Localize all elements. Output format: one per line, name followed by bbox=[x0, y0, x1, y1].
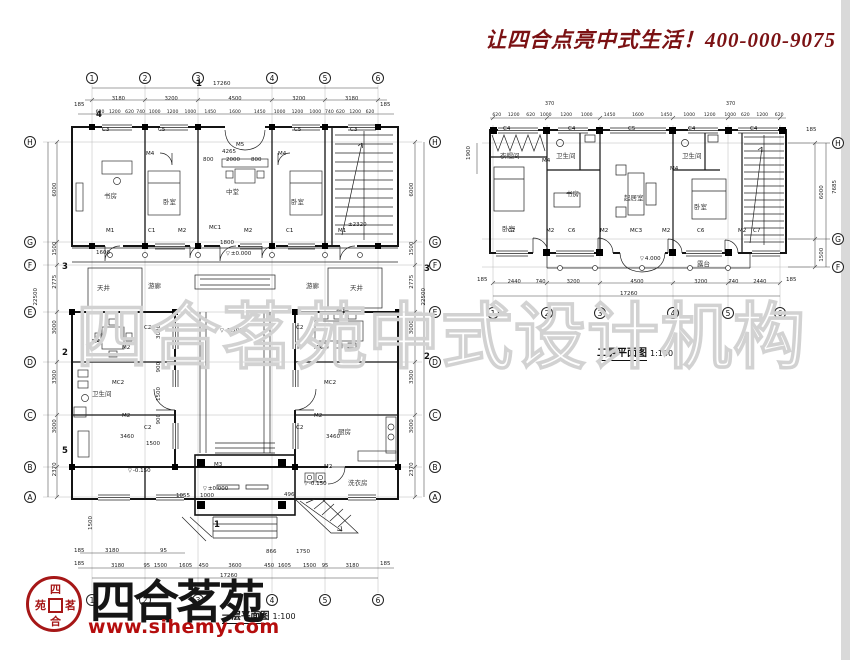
door-tag: M2 bbox=[600, 228, 608, 234]
dim: 4500 bbox=[198, 96, 273, 103]
dim: 6000 bbox=[817, 143, 827, 242]
dim-total-width: 17260 bbox=[620, 291, 638, 297]
seal-square bbox=[48, 598, 63, 613]
stair-level: ±2320 bbox=[348, 222, 367, 228]
grid-bubble: 5 bbox=[722, 307, 734, 319]
level-marker: ±0.000 bbox=[226, 251, 251, 257]
grid-bubble: G bbox=[24, 236, 36, 248]
room-label-closet: 衣帽间 bbox=[500, 150, 520, 160]
window-tag: C4 bbox=[750, 126, 757, 132]
grid-bubble: B bbox=[24, 461, 36, 473]
level-marker: 4.000 bbox=[640, 256, 661, 262]
grid-bubble: F bbox=[429, 259, 441, 271]
door-tag: M2 bbox=[738, 228, 746, 234]
room-label-study: 书房 bbox=[566, 188, 579, 198]
room-label-lightwell: 天井 bbox=[97, 282, 110, 292]
dim: 4500 bbox=[600, 279, 675, 286]
dim: 496 bbox=[284, 492, 295, 498]
dim: 900 bbox=[156, 362, 162, 373]
dim: 1200 bbox=[345, 110, 364, 116]
dim-total-height: 22500 bbox=[33, 288, 39, 306]
window-tag: C6 bbox=[568, 228, 575, 234]
room-label-dining: 餐厅 bbox=[336, 306, 349, 316]
dim: 900 bbox=[156, 414, 162, 425]
dim-chain-top-main: 3180 3200 4500 3200 3180 bbox=[92, 96, 378, 103]
dim-edge: 185 bbox=[477, 277, 488, 283]
window-tag: C2 bbox=[144, 325, 151, 331]
room-label-terrace: 露台 bbox=[697, 258, 710, 268]
dim: 2370 bbox=[50, 451, 60, 488]
door-window-tag: MC2 bbox=[112, 380, 124, 386]
dim-chain-top: 620 1200 620 1000 1200 1000 1450 1600 14… bbox=[491, 113, 785, 119]
grid-bubble: H bbox=[832, 137, 844, 149]
grid-bubble: H bbox=[429, 136, 441, 148]
dim: 620 bbox=[365, 110, 375, 116]
door-tag: M2 bbox=[314, 345, 322, 351]
door-tag: M2 bbox=[178, 228, 186, 234]
dim: 1500 bbox=[297, 563, 321, 570]
dim: 1605 bbox=[271, 563, 297, 570]
dim: 620 bbox=[740, 113, 752, 119]
dim: 1500 bbox=[88, 516, 94, 530]
dim: 3180 bbox=[92, 96, 145, 103]
room-label-bathroom: 卫生间 bbox=[92, 388, 112, 398]
dim: 740 bbox=[534, 279, 546, 286]
dim: 3000 bbox=[50, 304, 60, 351]
section-mark: 4 bbox=[96, 110, 102, 120]
window-tag: C4 bbox=[503, 126, 510, 132]
dim-edge: 185 bbox=[74, 102, 85, 108]
dim: 3460 bbox=[120, 434, 134, 440]
dim: 1000 bbox=[536, 113, 555, 119]
dim: 3180 bbox=[327, 563, 378, 570]
dim: 95 bbox=[160, 548, 167, 554]
section-mark: 3 bbox=[62, 262, 68, 272]
dim: 1450 bbox=[596, 113, 623, 119]
grid-bubble: B bbox=[429, 461, 441, 473]
dim-edge: 185 bbox=[380, 561, 391, 567]
dim: 1800 bbox=[220, 240, 234, 246]
dim-total-height: 7685 bbox=[832, 180, 838, 194]
seal-char: 四 bbox=[50, 581, 61, 597]
window-tag: C2 bbox=[296, 325, 303, 331]
window-tag: C4 bbox=[568, 126, 575, 132]
dim: 620 bbox=[525, 113, 537, 119]
room-label-bedroom: 卧室 bbox=[291, 196, 304, 206]
dim: 620 bbox=[773, 113, 785, 119]
dim-edge: 185 bbox=[380, 102, 391, 108]
grid-bubble: 6 bbox=[372, 72, 384, 84]
door-tag: M4 bbox=[542, 158, 550, 164]
section-mark: 3 bbox=[424, 264, 430, 274]
dim: 3200 bbox=[272, 96, 325, 103]
dim: 3300 bbox=[407, 351, 417, 403]
dim: 620 bbox=[125, 110, 135, 116]
plan2-caption-scale: 1:100 bbox=[650, 349, 673, 358]
dim: 740 bbox=[323, 110, 335, 116]
grid-bubble: G bbox=[429, 236, 441, 248]
door-tag: M1 bbox=[106, 228, 114, 234]
dim: 800 bbox=[251, 157, 262, 163]
dim: 6000 bbox=[50, 142, 60, 237]
dim: 1450 bbox=[248, 110, 272, 116]
grid-bubble: 5 bbox=[319, 594, 331, 606]
dim: 2440 bbox=[740, 279, 780, 286]
room-label-bedroom: 卧室 bbox=[163, 196, 176, 206]
grid-bubble: 6 bbox=[774, 307, 786, 319]
room-label-lightwell: 天井 bbox=[350, 282, 363, 292]
dim: 1200 bbox=[503, 113, 525, 119]
dim: 1000 bbox=[577, 113, 596, 119]
grid-bubble: 4 bbox=[266, 72, 278, 84]
dim: 1200 bbox=[555, 113, 577, 119]
grid-bubble: E bbox=[24, 306, 36, 318]
dim: 620 bbox=[491, 113, 503, 119]
dim: 3000 bbox=[156, 325, 162, 339]
room-label-kitchen: 厨房 bbox=[338, 426, 351, 436]
dim: 1000 bbox=[271, 110, 287, 116]
room-label-bedroom: 卧室 bbox=[694, 201, 707, 211]
door-window-tag: MC1 bbox=[209, 225, 221, 231]
room-label-bathroom: 卫生间 bbox=[556, 150, 576, 160]
dim: 740 bbox=[135, 110, 147, 116]
seal-char: 茗 bbox=[65, 597, 76, 613]
dim: 2440 bbox=[494, 279, 534, 286]
door-tag: M1 bbox=[338, 228, 346, 234]
drawing-sheet: 让四合点亮中式生活！400-000-9075 bbox=[0, 0, 850, 660]
dim: 620 bbox=[335, 110, 345, 116]
section-mark: 1 bbox=[196, 79, 202, 89]
dim: 1200 bbox=[751, 113, 773, 119]
grid-bubble: 4 bbox=[266, 594, 278, 606]
window-tag: C3 bbox=[350, 127, 357, 133]
dim: 1000 bbox=[200, 493, 214, 499]
dim: 6000 bbox=[407, 142, 417, 237]
dim: 1200 bbox=[699, 113, 721, 119]
window-tag: C3 bbox=[102, 127, 109, 133]
dim: 866 bbox=[266, 549, 277, 555]
grid-bubble: 2 bbox=[139, 72, 151, 84]
dim: 370 bbox=[726, 102, 735, 107]
dim: 1000 bbox=[680, 113, 699, 119]
dim: 1750 bbox=[296, 549, 310, 555]
grid-bubble: A bbox=[429, 491, 441, 503]
grid-bubble: 1 bbox=[86, 72, 98, 84]
dim: 3180 bbox=[105, 548, 119, 554]
dim: 1500 bbox=[146, 441, 160, 447]
room-label-laundry: 洗衣房 bbox=[348, 477, 368, 487]
window-tag: C2 bbox=[144, 425, 151, 431]
dim-chain-right: 6000 1500 bbox=[817, 143, 827, 267]
dim: 1000 bbox=[307, 110, 323, 116]
dim: 1600 bbox=[623, 113, 653, 119]
door-tag: M2 bbox=[314, 413, 322, 419]
door-tag: M4 bbox=[146, 151, 154, 157]
grid-bubble: A bbox=[24, 491, 36, 503]
dim: 3300 bbox=[50, 351, 60, 403]
door-tag: M2 bbox=[122, 413, 130, 419]
section-mark: 1 bbox=[214, 520, 220, 530]
grid-bubble: 4 bbox=[667, 307, 679, 319]
level-marker: ±0.000 bbox=[203, 486, 228, 492]
room-label-gallery: 游廊 bbox=[148, 280, 161, 290]
section-mark: 5 bbox=[62, 446, 68, 456]
dim: 1000 bbox=[182, 110, 198, 116]
dim: 3000 bbox=[407, 403, 417, 450]
dim: 3000 bbox=[50, 403, 60, 450]
room-label-hall: 中堂 bbox=[226, 186, 239, 196]
grid-bubble: G bbox=[832, 233, 844, 245]
section-mark: 2 bbox=[424, 352, 430, 362]
dim-total-height: 22500 bbox=[421, 288, 427, 306]
grid-bubble: D bbox=[24, 356, 36, 368]
dim: 1450 bbox=[199, 110, 223, 116]
window-tag: C7 bbox=[753, 228, 760, 234]
dim-edge: 185 bbox=[786, 277, 797, 283]
window-tag: C5 bbox=[294, 127, 301, 133]
grid-bubble: 3 bbox=[594, 307, 606, 319]
grid-bubble: E bbox=[429, 306, 441, 318]
slogan-banner: 让四合点亮中式生活！400-000-9075 bbox=[420, 24, 836, 54]
door-tag: M5 bbox=[236, 142, 244, 148]
dim: 4265 bbox=[222, 149, 236, 155]
dim: 2775 bbox=[50, 260, 60, 304]
grid-bubble: 6 bbox=[372, 594, 384, 606]
dim: 1500 bbox=[407, 237, 417, 261]
door-window-tag: MC2 bbox=[324, 380, 336, 386]
room-label-bathroom: 卫生间 bbox=[682, 150, 702, 160]
dim: 1450 bbox=[653, 113, 680, 119]
dim: 3000 bbox=[407, 304, 417, 351]
dim: 2775 bbox=[407, 260, 417, 304]
dim-chain-top-detail: 620 1200 620 740 1000 1200 1000 1450 160… bbox=[95, 110, 375, 116]
dim: 1600 bbox=[96, 250, 110, 256]
dim: 1000 bbox=[721, 113, 740, 119]
dim: 1200 bbox=[105, 110, 124, 116]
level-marker: -0.500 bbox=[220, 328, 243, 334]
grid-bubble: C bbox=[24, 409, 36, 421]
door-tag: M2 bbox=[546, 228, 554, 234]
dim-chain-bottom: 2440 740 3200 4500 3200 740 2440 bbox=[494, 279, 780, 286]
dim: 1500 bbox=[50, 237, 60, 261]
dim: 2370 bbox=[407, 451, 417, 488]
grid-bubble: F bbox=[24, 259, 36, 271]
grid-bubble: H bbox=[24, 136, 36, 148]
dim: 370 bbox=[545, 102, 554, 107]
grid-bubble: 5 bbox=[319, 72, 331, 84]
dim: 3180 bbox=[325, 96, 378, 103]
door-tag: M2 bbox=[244, 228, 252, 234]
plan2-caption: 二层平面图1:100 bbox=[597, 344, 673, 359]
door-tag: M4 bbox=[670, 166, 678, 172]
level-marker: -0.150 bbox=[304, 481, 327, 487]
dim-chain-right: 6000 1500 2775 3000 3300 3000 2370 bbox=[407, 142, 417, 488]
dim-total-width: 17260 bbox=[213, 81, 231, 87]
dim: 450 bbox=[264, 563, 271, 570]
dim: 3200 bbox=[674, 279, 727, 286]
dim: 185 bbox=[74, 548, 85, 554]
scrollbar-strip[interactable] bbox=[841, 0, 850, 660]
seal-char: 合 bbox=[50, 613, 61, 629]
door-tag: M2 bbox=[662, 228, 670, 234]
plan2-linework bbox=[470, 95, 850, 330]
door-tag: M2 bbox=[122, 345, 130, 351]
dim-chain-left: 6000 1500 2775 3000 3300 3000 2370 bbox=[50, 142, 60, 488]
window-tag: C1 bbox=[286, 228, 293, 234]
dim: 1900 bbox=[466, 146, 472, 160]
dim: 3200 bbox=[145, 96, 198, 103]
door-window-tag: MC3 bbox=[630, 228, 642, 234]
brand-seal-logo: 四 茗 合 苑 bbox=[26, 576, 82, 632]
dim: 1000 bbox=[147, 110, 163, 116]
grid-bubble: 1 bbox=[487, 307, 499, 319]
dim: 740 bbox=[727, 279, 739, 286]
door-tag: M4 bbox=[278, 151, 286, 157]
grid-bubble: D bbox=[429, 356, 441, 368]
window-tag: C5 bbox=[628, 126, 635, 132]
window-tag: C5 bbox=[158, 127, 165, 133]
dim: 1500 bbox=[156, 387, 162, 401]
window-tag: C7 bbox=[508, 228, 515, 234]
dim: 1500 bbox=[817, 242, 827, 267]
dim: 800 bbox=[203, 157, 214, 163]
room-label-living: 起居室 bbox=[624, 192, 644, 202]
brand-website[interactable]: www.sihemy.com bbox=[88, 616, 280, 638]
window-tag: C6 bbox=[697, 228, 704, 234]
grid-bubble: 2 bbox=[541, 307, 553, 319]
grid-bubble: C bbox=[429, 409, 441, 421]
section-mark: 2 bbox=[62, 348, 68, 358]
room-label-gallery: 游廊 bbox=[306, 280, 319, 290]
dim: 1200 bbox=[163, 110, 182, 116]
dim: 3200 bbox=[547, 279, 600, 286]
dim: 1600 bbox=[222, 110, 248, 116]
seal-char: 苑 bbox=[35, 597, 46, 613]
grid-bubble: F bbox=[832, 261, 844, 273]
dim-edge: 185 bbox=[806, 127, 817, 133]
door-tag: M4 bbox=[92, 339, 100, 345]
window-tag: C1 bbox=[148, 228, 155, 234]
level-marker: -0.150 bbox=[128, 468, 151, 474]
dim-edge: 185 bbox=[74, 561, 85, 567]
room-label-study: 书房 bbox=[104, 190, 117, 200]
gate-door-tag: M3 bbox=[214, 462, 222, 468]
dim: 1200 bbox=[288, 110, 307, 116]
door-tag: M2 bbox=[324, 464, 332, 470]
dim: 2000 bbox=[226, 157, 240, 163]
dim: 1055 bbox=[176, 493, 190, 499]
plan2-caption-title: 二层平面图 bbox=[597, 348, 647, 361]
window-tag: C4 bbox=[688, 126, 695, 132]
window-tag: C2 bbox=[296, 425, 303, 431]
